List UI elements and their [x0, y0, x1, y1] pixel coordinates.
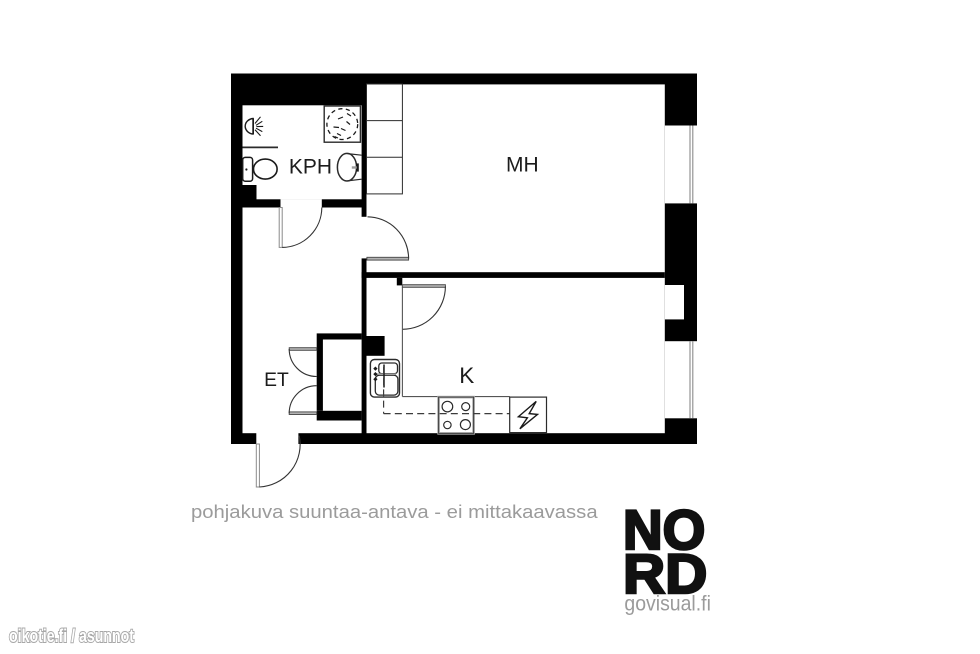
svg-text:KPH: KPH	[289, 155, 332, 178]
svg-text:pohjakuva suuntaa-antava - ei: pohjakuva suuntaa-antava - ei mittakaava…	[191, 501, 598, 522]
svg-text:MH: MH	[506, 154, 539, 177]
svg-text:K: K	[459, 363, 474, 388]
svg-text:ET: ET	[264, 370, 289, 391]
svg-text:govisual.fi: govisual.fi	[624, 591, 711, 615]
svg-text:oikotie.fi / asunnot: oikotie.fi / asunnot	[9, 625, 134, 646]
